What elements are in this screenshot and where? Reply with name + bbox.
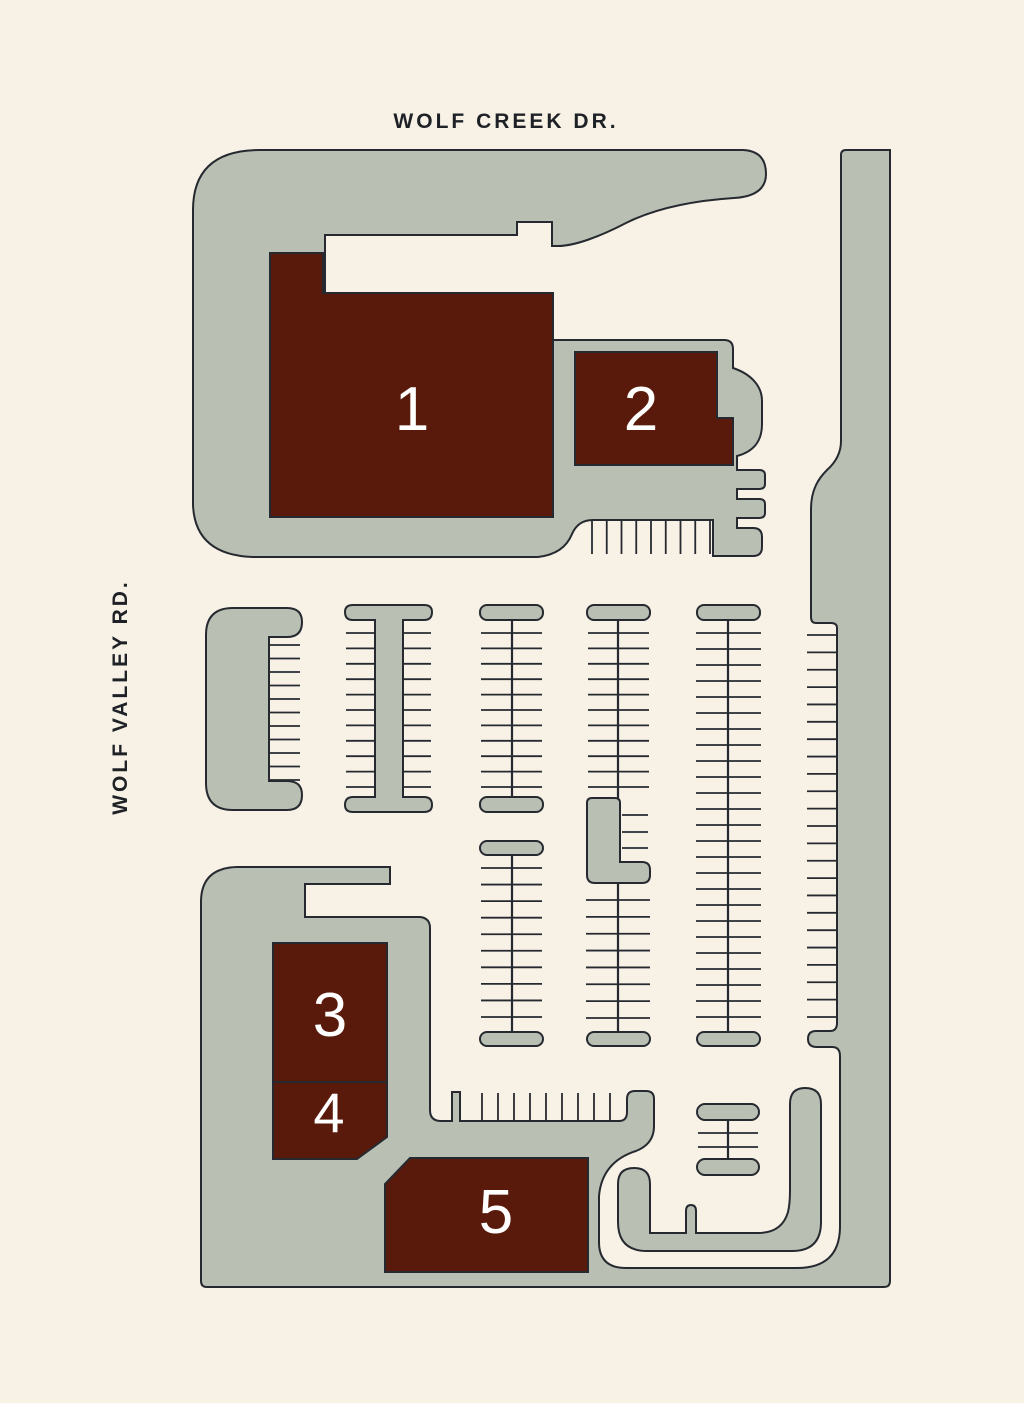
parking-row-3 bbox=[480, 605, 543, 1046]
row4-l-pad bbox=[587, 798, 650, 883]
parking-island-ibeam bbox=[345, 605, 432, 812]
site-plan: WOLF CREEK DR. WOLF VALLEY RD. bbox=[0, 0, 1024, 1403]
row5-bottom-bar bbox=[697, 1032, 760, 1046]
street-label-left: WOLF VALLEY RD. bbox=[109, 579, 132, 815]
building-1-label: 1 bbox=[395, 375, 429, 444]
row3-bottom-bar bbox=[480, 1032, 543, 1046]
row3-mid-bar-a bbox=[480, 797, 543, 812]
building-2-label: 2 bbox=[624, 375, 658, 444]
courtyard-parking-island bbox=[697, 1104, 759, 1175]
row3-top-bar bbox=[480, 605, 543, 620]
row4-top-bar bbox=[587, 605, 650, 620]
parking-row-4 bbox=[587, 605, 650, 1046]
courtyard-island-top-bar bbox=[697, 1104, 759, 1120]
courtyard-island-bottom-bar bbox=[697, 1159, 759, 1175]
parking-row-2 bbox=[345, 605, 432, 812]
building-5-label: 5 bbox=[479, 1178, 513, 1247]
row3-mid-bar-b bbox=[480, 841, 543, 855]
row5-top-bar bbox=[697, 605, 760, 620]
street-label-top: WOLF CREEK DR. bbox=[393, 110, 618, 133]
row4-bottom-bar bbox=[587, 1032, 650, 1046]
building-3-label: 3 bbox=[313, 981, 347, 1050]
building-4-label: 4 bbox=[313, 1081, 344, 1144]
site-plan-svg: WOLF CREEK DR. WOLF VALLEY RD. bbox=[0, 0, 1024, 1403]
